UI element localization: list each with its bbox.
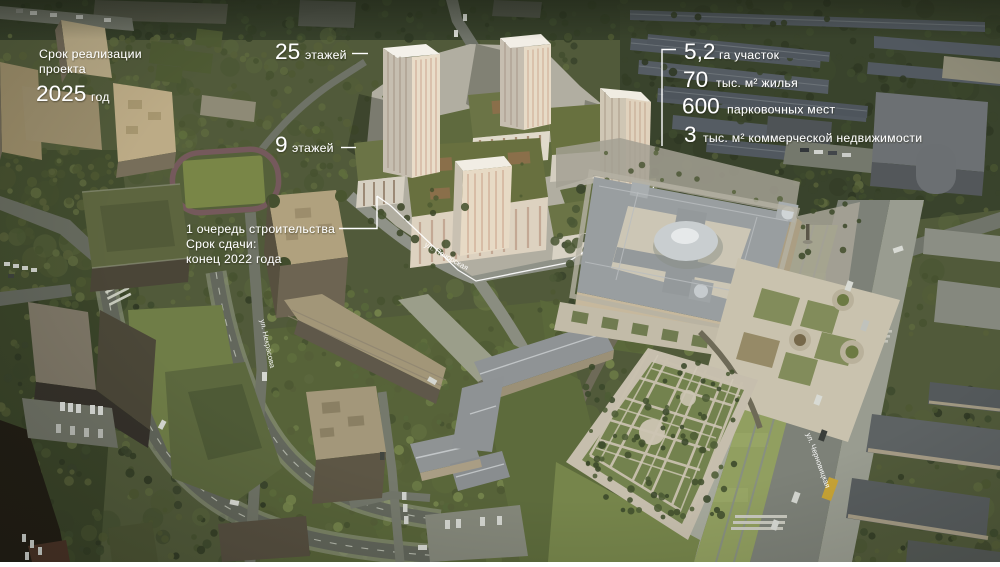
svg-text:тыс. м² коммерческой недвижимо: тыс. м² коммерческой недвижимости xyxy=(703,131,922,145)
svg-text:га участок: га участок xyxy=(719,48,780,62)
svg-text:парковочных мест: парковочных мест xyxy=(727,103,835,117)
svg-text:2025: 2025 xyxy=(36,81,86,106)
svg-text:3: 3 xyxy=(684,122,697,147)
svg-text:этажей: этажей xyxy=(305,48,347,62)
svg-text:конец 2022 года: конец 2022 года xyxy=(186,252,282,266)
svg-text:Срок сдачи:: Срок сдачи: xyxy=(186,237,257,251)
svg-text:25: 25 xyxy=(275,39,300,64)
svg-text:9: 9 xyxy=(275,132,288,157)
svg-text:70: 70 xyxy=(683,67,708,92)
svg-text:год: год xyxy=(91,90,110,104)
svg-text:600: 600 xyxy=(682,94,720,119)
svg-text:1 очередь строительства: 1 очередь строительства xyxy=(186,222,335,236)
svg-text:Срок реализации: Срок реализации xyxy=(39,47,142,61)
svg-text:проекта: проекта xyxy=(39,62,86,76)
svg-text:тыс. м² жилья: тыс. м² жилья xyxy=(716,76,798,90)
svg-text:этажей: этажей xyxy=(292,141,334,155)
svg-text:5,2: 5,2 xyxy=(684,39,715,64)
